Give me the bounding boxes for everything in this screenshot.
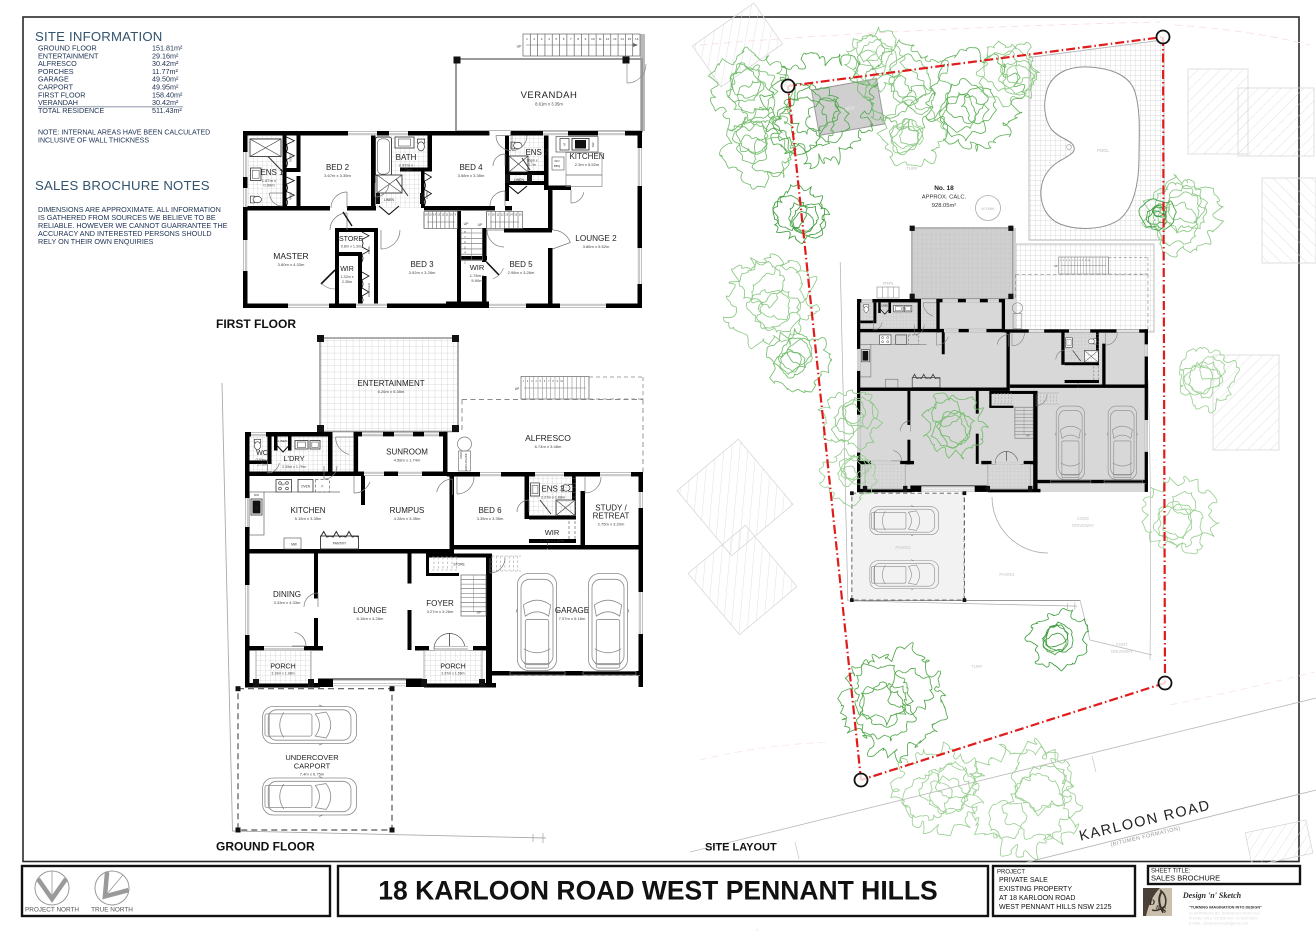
svg-text:2.98m x 3.26m: 2.98m x 3.26m	[508, 270, 535, 275]
svg-text:3.80m x 4.33m: 3.80m x 4.33m	[278, 262, 305, 267]
svg-text:5.15m x 3.35m: 5.15m x 3.35m	[295, 516, 322, 521]
svg-text:MW: MW	[291, 543, 297, 547]
svg-text:D: D	[1148, 898, 1155, 907]
svg-text:DRIVEWAY: DRIVEWAY	[1111, 649, 1133, 654]
svg-text:16: 16	[635, 37, 639, 41]
svg-text:1.32m x: 1.32m x	[340, 275, 353, 279]
svg-text:"TURNING IMAGINATION INTO DESI: "TURNING IMAGINATION INTO DESIGN"	[1189, 906, 1262, 910]
svg-text:2.27m x 1.88m: 2.27m x 1.88m	[541, 496, 565, 500]
svg-text:3.27m x 3.26m: 3.27m x 3.26m	[427, 609, 454, 614]
svg-text:CARPORT: CARPORT	[294, 762, 331, 771]
svg-text:15: 15	[628, 37, 632, 41]
svg-text:WO: WO	[554, 159, 560, 163]
svg-text:2.97m x 1.58m: 2.97m x 1.58m	[441, 672, 464, 676]
svg-text:6.26m x 5.35m: 6.26m x 5.35m	[378, 389, 405, 394]
svg-text:S: S	[255, 506, 257, 510]
svg-text:EXISTING PROPERTY: EXISTING PROPERTY	[999, 886, 1072, 893]
svg-text:BED 4: BED 4	[459, 163, 483, 172]
svg-text:UP: UP	[517, 45, 522, 49]
svg-text:BBQ: BBQ	[554, 164, 561, 168]
svg-text:1.75m: 1.75m	[257, 463, 267, 467]
svg-text:7.07m x 6.16m: 7.07m x 6.16m	[559, 616, 586, 621]
svg-text:SALES BROCHURE: SALES BROCHURE	[1151, 874, 1220, 883]
svg-text:POOL: POOL	[459, 451, 463, 459]
svg-text:GARAGE: GARAGE	[555, 606, 589, 615]
svg-text:ROBE: ROBE	[289, 154, 293, 162]
svg-text:3.19m x 1.98m: 3.19m x 1.98m	[271, 672, 294, 676]
svg-text:VERANDAH: VERANDAH	[521, 90, 578, 101]
svg-text:UP: UP	[464, 222, 469, 226]
svg-text:Design 'n' Sketch: Design 'n' Sketch	[1182, 891, 1242, 900]
svg-text:DRIVEWAY: DRIVEWAY	[1072, 523, 1094, 528]
svg-text:ENTERTAINMENT: ENTERTAINMENT	[357, 379, 424, 388]
svg-text:BED 3: BED 3	[410, 260, 434, 269]
svg-text:TRUE NORTH: TRUE NORTH	[91, 907, 133, 914]
svg-text:WIR: WIR	[545, 528, 560, 537]
svg-text:S: S	[563, 143, 565, 147]
svg-text:PHONE: 0413 725 596 FAX: 02: PHONE: 0413 725 596 FAX: 02 9625 5439	[1189, 917, 1258, 921]
svg-text:13: 13	[613, 37, 617, 41]
svg-text:0.89m x: 0.89m x	[256, 458, 269, 462]
svg-text:LOUNGE: LOUNGE	[353, 606, 387, 615]
svg-text:2.3m x 5.52m: 2.3m x 5.52m	[575, 162, 600, 167]
svg-text:6.74m x 3.48m: 6.74m x 3.48m	[535, 444, 562, 449]
svg-text:WEST PENNANT HILLS NSW 2125: WEST PENNANT HILLS NSW 2125	[999, 904, 1112, 911]
svg-text:UP: UP	[478, 223, 483, 227]
svg-text:4.28m x 3.35m: 4.28m x 3.35m	[394, 516, 421, 521]
svg-text:W.TANK: W.TANK	[981, 207, 995, 211]
svg-text:E-MAIL: designsketch@bigpond.c: E-MAIL: designsketch@bigpond.com	[1189, 922, 1248, 926]
svg-text:2.75m x 3.20m: 2.75m x 3.20m	[598, 522, 625, 527]
svg-text:2.39m x 1.79m: 2.39m x 1.79m	[282, 465, 306, 469]
svg-text:DINING: DINING	[273, 590, 301, 599]
svg-text:3.35m x 3.35m: 3.35m x 3.35m	[477, 516, 504, 521]
svg-text:LINEN: LINEN	[514, 178, 525, 182]
svg-text:2.35m: 2.35m	[342, 280, 352, 284]
svg-text:FOYER: FOYER	[426, 599, 454, 608]
svg-text:NOTE: INTERNAL AREAS HAVE BEEN: NOTE: INTERNAL AREAS HAVE BEEN CALCULATE…	[38, 130, 210, 137]
svg-text:7.4m x 6.75m: 7.4m x 6.75m	[300, 772, 325, 777]
svg-text:ENS 2: ENS 2	[525, 148, 549, 157]
svg-text:PORCH: PORCH	[270, 664, 295, 671]
svg-text:PANTRY: PANTRY	[333, 542, 347, 546]
svg-text:18 KARLOON ROAD WEST PENNANT H: 18 KARLOON ROAD WEST PENNANT HILLS	[378, 876, 937, 906]
svg-text:2.27m x 1.37m: 2.27m x 1.37m	[540, 539, 564, 543]
svg-text:ROBE: ROBE	[425, 191, 429, 199]
svg-text:BATH: BATH	[396, 153, 417, 162]
svg-text:PROJECT NORTH: PROJECT NORTH	[25, 907, 79, 914]
svg-text:RUMPUS: RUMPUS	[390, 506, 425, 515]
svg-text:8.61m x 3.35m: 8.61m x 3.35m	[535, 102, 563, 107]
svg-text:FIRST FLOOR: FIRST FLOOR	[216, 317, 296, 331]
svg-text:90gm x: 90gm x	[526, 159, 537, 163]
svg-text:DW: DW	[254, 493, 259, 497]
svg-text:GROUND FLOOR: GROUND FLOOR	[216, 840, 315, 854]
svg-text:3.67m x 3.35m: 3.67m x 3.35m	[324, 173, 351, 178]
svg-text:BED 5: BED 5	[509, 260, 533, 269]
svg-text:OVEN: OVEN	[301, 485, 311, 489]
svg-text:511.43m²: 511.43m²	[152, 106, 182, 115]
svg-text:BED 6: BED 6	[478, 506, 502, 515]
svg-text:SITE INFORMATION: SITE INFORMATION	[35, 29, 163, 44]
svg-text:S: S	[1162, 906, 1167, 915]
svg-text:STORE: STORE	[453, 563, 465, 567]
svg-text:SUNROOM: SUNROOM	[386, 448, 428, 457]
svg-text:L'DRY: L'DRY	[283, 454, 304, 463]
svg-text:MASTER: MASTER	[273, 251, 308, 261]
svg-text:ENS 3: ENS 3	[541, 485, 565, 494]
svg-text:ROBE: ROBE	[289, 192, 293, 200]
svg-text:LINEN: LINEN	[278, 439, 287, 443]
svg-text:1.7m: 1.7m	[528, 163, 536, 167]
svg-text:ALFRESCO: ALFRESCO	[525, 433, 571, 443]
svg-text:WIR: WIR	[340, 266, 354, 273]
svg-text:ENCLOSURE: ENCLOSURE	[464, 453, 468, 471]
svg-text:PRIVATE SALE: PRIVATE SALE	[999, 877, 1048, 884]
svg-text:KITCHEN: KITCHEN	[569, 152, 604, 161]
svg-text:10: 10	[591, 37, 595, 41]
svg-text:0.99m: 0.99m	[263, 183, 275, 188]
svg-text:TOTAL RESIDENCE: TOTAL RESIDENCE	[38, 106, 104, 115]
svg-text:PROJECT: PROJECT	[997, 870, 1025, 876]
svg-text:TURF: TURF	[971, 664, 983, 669]
svg-text:UP: UP	[477, 611, 482, 615]
svg-text:APPROX. CALC.: APPROX. CALC.	[922, 195, 967, 201]
svg-text:PAVING: PAVING	[895, 545, 910, 550]
svg-text:INCLUSIVE OF WALL THICKNESS: INCLUSIVE OF WALL THICKNESS	[38, 138, 149, 145]
svg-text:ENS 1: ENS 1	[260, 168, 284, 177]
svg-text:11: 11	[599, 37, 602, 41]
svg-text:3.92m x 3.26m: 3.92m x 3.26m	[409, 270, 436, 275]
svg-text:POOL: POOL	[1097, 148, 1109, 153]
svg-text:4.58m x 1.74m: 4.58m x 1.74m	[394, 458, 421, 463]
svg-text:BED 2: BED 2	[326, 163, 350, 172]
svg-text:3.86m x 5.52m: 3.86m x 5.52m	[583, 244, 610, 249]
svg-text:ROBE: ROBE	[367, 246, 371, 254]
svg-text:UP: UP	[515, 387, 519, 391]
svg-text:2.72m: 2.72m	[400, 167, 412, 172]
svg-text:12: 12	[606, 37, 610, 41]
svg-text:PAVING: PAVING	[999, 572, 1014, 577]
svg-text:41 BARRACKS RD, BARRACKS NSW 2: 41 BARRACKS RD, BARRACKS NSW 2121	[1189, 912, 1260, 916]
svg-text:TURF: TURF	[906, 166, 918, 171]
svg-text:F: F	[322, 485, 324, 489]
svg-text:3.33m x 4.33m: 3.33m x 4.33m	[274, 600, 301, 605]
svg-text:928.05m²: 928.05m²	[932, 203, 957, 209]
svg-text:HP: HP	[281, 483, 285, 487]
svg-text:0.8m x 1.3m: 0.8m x 1.3m	[341, 245, 361, 249]
svg-text:PORCH: PORCH	[440, 664, 465, 671]
svg-text:SALES BROCHURE NOTES: SALES BROCHURE NOTES	[35, 178, 210, 193]
svg-text:LINEN: LINEN	[384, 198, 395, 202]
svg-text:6.16m x 4.28m: 6.16m x 4.28m	[357, 616, 384, 621]
svg-text:RELY ON THEIR OWN ENQUIRIES: RELY ON THEIR OWN ENQUIRIES	[38, 237, 154, 246]
svg-text:&: &	[1156, 905, 1161, 911]
svg-text:No. 18: No. 18	[934, 185, 954, 192]
svg-text:WIR: WIR	[470, 263, 485, 272]
svg-text:SW: SW	[591, 142, 595, 147]
svg-text:LOUNGE 2: LOUNGE 2	[575, 234, 617, 243]
svg-text:3.58m x 3.35m: 3.58m x 3.35m	[458, 173, 485, 178]
svg-text:DRESSER: DRESSER	[367, 283, 371, 297]
svg-text:14: 14	[620, 37, 624, 41]
svg-text:SITE LAYOUT: SITE LAYOUT	[705, 842, 777, 854]
svg-text:STEPS: STEPS	[883, 282, 893, 286]
svg-text:STORE: STORE	[339, 236, 363, 243]
svg-text:KITCHEN: KITCHEN	[290, 506, 325, 515]
svg-text:RETREAT: RETREAT	[593, 512, 630, 521]
svg-text:WC: WC	[256, 450, 268, 457]
svg-text:FONT: FONT	[1116, 642, 1128, 647]
svg-text:CONC: CONC	[1077, 516, 1089, 521]
svg-text:5.90m: 5.90m	[471, 278, 483, 283]
svg-text:AT 18 KARLOON ROAD: AT 18 KARLOON ROAD	[999, 895, 1075, 902]
